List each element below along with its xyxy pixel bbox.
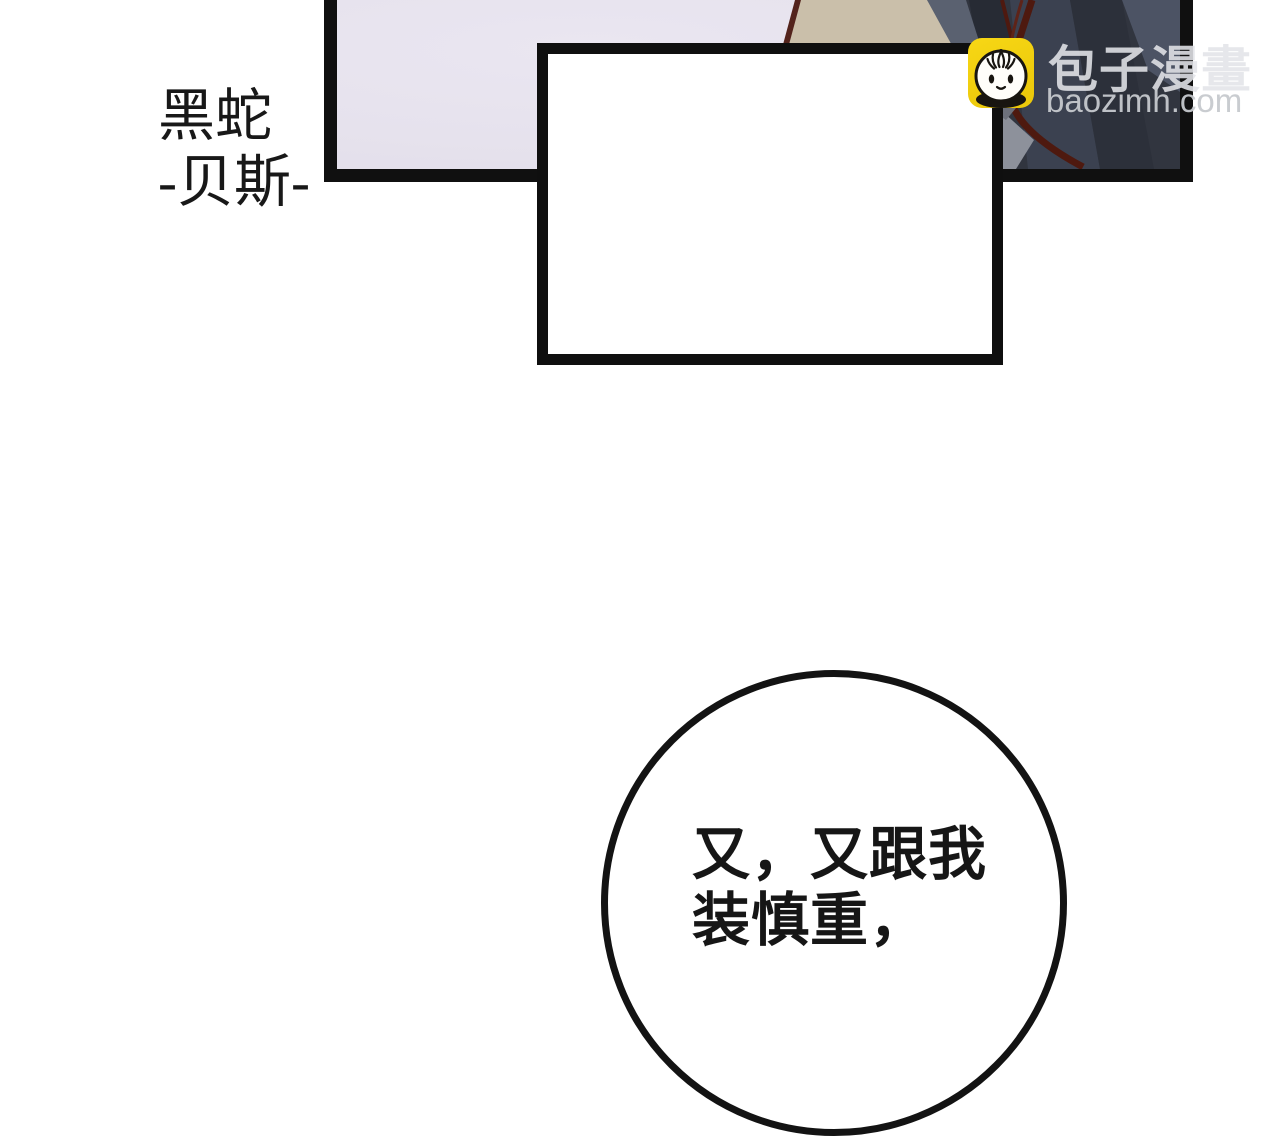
caption-box	[537, 43, 1003, 365]
bubble-line-1: 又，又跟我	[692, 822, 987, 888]
speech-bubble-text: 又，又跟我 装慎重，	[692, 822, 987, 954]
caption-text: 黑蛇 -贝斯-	[158, 84, 310, 216]
bubble-line-2: 装慎重，	[692, 888, 987, 954]
watermark-domain: baozimh.com	[1046, 84, 1242, 118]
caption-line-2: -贝斯-	[158, 150, 310, 216]
caption-line-1: 黑蛇	[158, 84, 310, 150]
baozi-bun-icon	[968, 38, 1034, 108]
